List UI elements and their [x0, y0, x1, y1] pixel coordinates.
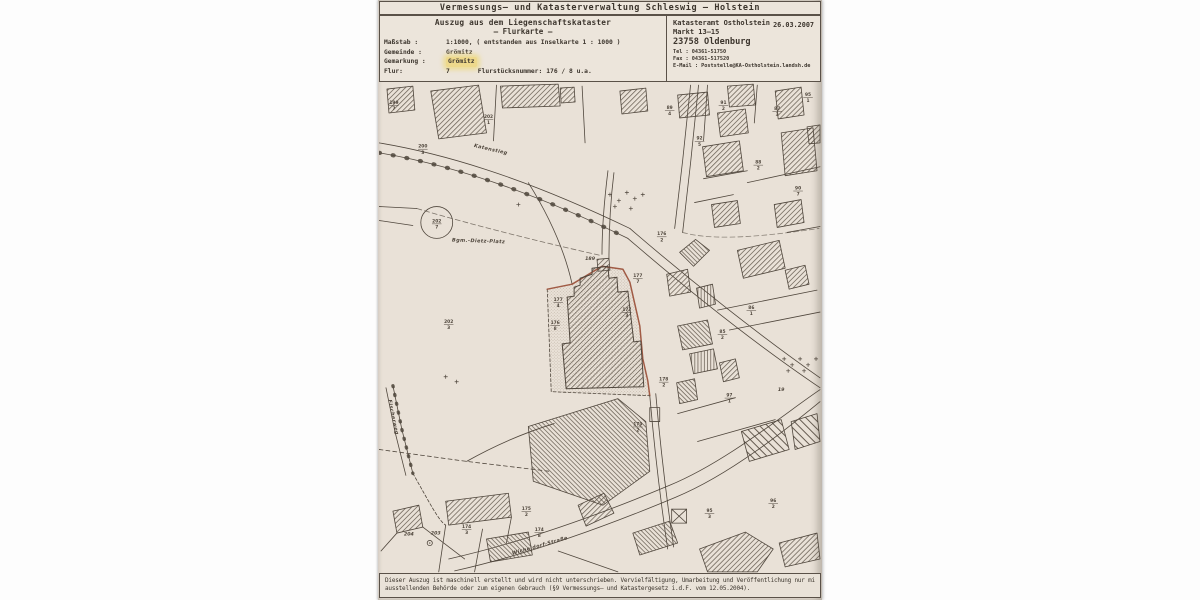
svg-text:177: 177: [622, 307, 631, 313]
cul-de-sac: [379, 207, 600, 256]
svg-text:7: 7: [392, 106, 395, 112]
svg-text:7: 7: [636, 279, 639, 285]
svg-text:95: 95: [805, 92, 811, 98]
svg-text:2: 2: [757, 166, 760, 172]
office-section: 26.03.2007 Katasteramt Ostholstein Markt…: [667, 16, 820, 81]
document-date: 26.03.2007: [773, 21, 814, 29]
parcel-number-label: 204: [404, 532, 415, 538]
flurstuecksnummer-value: 176 / 8 u.a.: [546, 67, 592, 77]
svg-text:8: 8: [538, 533, 541, 539]
parcel-number-label: 1743: [462, 524, 472, 536]
office-street: Markt 13–15: [673, 28, 816, 37]
parcel-number-label: 925: [695, 136, 705, 148]
svg-text:2: 2: [660, 237, 663, 243]
svg-text:2: 2: [525, 512, 528, 518]
svg-text:2: 2: [772, 504, 775, 510]
excerpt-section: Auszug aus dem Liegenschaftskataster – F…: [380, 16, 667, 81]
header-info-box: Auszug aus dem Liegenschaftskataster – F…: [379, 15, 821, 82]
grid-cross-mark: [814, 357, 818, 361]
parcel-number-label: 189: [585, 256, 596, 262]
document-title: Vermessungs– und Katasterverwaltung Schl…: [379, 1, 821, 15]
svg-text:179: 179: [633, 421, 642, 427]
svg-text:3: 3: [708, 514, 711, 520]
svg-text:5: 5: [698, 142, 701, 148]
cadastral-map: 1997202120032027202389491287395192588290…: [379, 82, 821, 573]
field-value: 7: [446, 67, 450, 77]
parcel-number-label: 203: [431, 531, 442, 537]
svg-text:19: 19: [778, 387, 785, 393]
svg-text:2: 2: [722, 106, 725, 112]
svg-text:1: 1: [728, 399, 731, 405]
parcel-number-label: 1782: [659, 377, 669, 389]
field-value-highlighted: Grömitz: [446, 57, 477, 67]
svg-text:203: 203: [431, 531, 442, 537]
parcel-number-label: 894: [665, 105, 675, 117]
grid-cross-mark: [786, 369, 790, 373]
svg-text:3: 3: [465, 530, 468, 536]
grid-cross-mark: [802, 369, 806, 373]
field-value: 1:1000, ( entstanden aus Inselkarte 1 : …: [446, 38, 620, 48]
svg-text:91: 91: [720, 100, 726, 106]
footer-note: Dieser Auszug ist maschinell erstellt un…: [379, 573, 821, 598]
svg-text:1: 1: [750, 311, 753, 317]
parcel-number-label: 1777: [633, 273, 643, 285]
svg-text:3: 3: [625, 313, 628, 319]
footer-line-2: ausstellenden Behörde oder zum eigenen G…: [385, 585, 815, 594]
street-name-label: Bgm.-Dietz-Platz: [452, 237, 506, 245]
fischerweg-road: [386, 386, 446, 525]
parcel-number-label: 951: [803, 92, 813, 104]
office-tel: Tel : 04361-51750: [673, 49, 816, 56]
parcel-number-label: 1752: [522, 506, 532, 518]
svg-text:90: 90: [795, 185, 801, 191]
excerpt-heading: Auszug aus dem Liegenschaftskataster: [384, 18, 662, 27]
svg-text:202: 202: [432, 218, 441, 224]
field-label: Gemeinde :: [384, 48, 446, 58]
svg-text:202: 202: [484, 114, 493, 120]
parcel-number-label: 912: [719, 100, 729, 112]
right-buildings: [667, 109, 820, 461]
grid-cross-mark: [790, 363, 794, 367]
parcel-number-label: 2023: [444, 319, 454, 331]
svg-text:189: 189: [585, 256, 596, 262]
flurstuecksnummer-label: Flurstücksnummer:: [478, 67, 542, 77]
crossed-building: [672, 509, 687, 523]
street-name-label: Katenstieg: [473, 143, 508, 157]
parcel-number-label: 953: [705, 508, 715, 520]
excerpt-subheading: – Flurkarte –: [384, 27, 662, 36]
svg-text:1: 1: [807, 98, 810, 104]
svg-text:202: 202: [444, 319, 453, 325]
footer-line-1: Dieser Auszug ist maschinell erstellt un…: [385, 577, 815, 586]
grid-cross-mark: [633, 197, 637, 201]
svg-text:2: 2: [721, 335, 724, 341]
field-label: Flur:: [384, 67, 446, 77]
office-fax: Fax : 04361-517520: [673, 56, 816, 63]
grid-cross-mark: [455, 380, 459, 384]
svg-text:Bgm.-Dietz-Platz: Bgm.-Dietz-Platz: [452, 237, 506, 245]
svg-text:86: 86: [748, 305, 754, 311]
field-row-massstab: Maßstab : 1:1000, ( entstanden aus Insel…: [384, 38, 662, 48]
svg-text:176: 176: [551, 320, 560, 326]
grid-cross-mark: [444, 375, 448, 379]
office-email: E-Mail : Poststelle@KA-Ostholstein.lands…: [673, 63, 816, 70]
svg-text:95: 95: [706, 508, 712, 514]
grid-cross-mark: [629, 207, 633, 211]
office-city: 23758 Oldenburg: [673, 37, 816, 48]
svg-text:96: 96: [770, 498, 776, 504]
svg-text:89: 89: [667, 105, 673, 111]
svg-text:92: 92: [697, 136, 703, 142]
svg-text:88: 88: [755, 160, 761, 166]
svg-text:4: 4: [668, 111, 671, 117]
parcel-number-label: 19: [778, 387, 785, 393]
field-label: Maßstab :: [384, 38, 446, 48]
svg-text:2: 2: [636, 428, 639, 434]
svg-text:1: 1: [487, 120, 490, 126]
grid-cross-mark: [641, 193, 645, 197]
parcel-number-label: 962: [768, 498, 778, 510]
scanned-document-stage: Vermessungs– und Katasterverwaltung Schl…: [0, 0, 1200, 600]
map-area: 1997202120032027202389491287395192588290…: [379, 82, 821, 573]
svg-text:177: 177: [633, 273, 642, 279]
field-row-gemarkung: Gemarkung : Grömitz: [384, 57, 662, 67]
grid-cross-mark: [806, 363, 810, 367]
svg-text:7: 7: [435, 224, 438, 230]
svg-text:199: 199: [389, 100, 398, 106]
svg-text:4: 4: [557, 303, 560, 309]
svg-text:178: 178: [659, 377, 668, 383]
svg-text:8: 8: [554, 326, 557, 332]
field-row-gemeinde: Gemeinde : Grömitz: [384, 48, 662, 58]
parcel-number-label: 852: [718, 329, 728, 341]
svg-text:7: 7: [797, 192, 800, 198]
svg-text:3: 3: [421, 150, 424, 156]
grid-cross-mark: [613, 205, 617, 209]
well-symbol: [427, 540, 432, 545]
grid-cross-mark: [625, 191, 629, 195]
parcel-number-label: 2027: [432, 218, 442, 230]
svg-text:Katenstieg: Katenstieg: [473, 143, 508, 157]
parcel-number-label: 1762: [657, 231, 667, 243]
svg-text:3: 3: [447, 325, 450, 331]
subject-building: [562, 258, 644, 388]
grid-cross-mark: [516, 203, 520, 207]
svg-text:87: 87: [774, 106, 780, 112]
field-label: Gemarkung :: [384, 57, 446, 67]
cadastral-extract-page: Vermessungs– und Katasterverwaltung Schl…: [378, 0, 822, 600]
parcel-number-label: 907: [793, 185, 803, 197]
grid-cross-mark: [798, 357, 802, 361]
svg-text:204: 204: [404, 532, 415, 538]
svg-text:3: 3: [776, 112, 779, 118]
parcel-number-label: 2003: [418, 144, 428, 156]
svg-text:200: 200: [418, 144, 427, 150]
svg-text:174: 174: [462, 524, 471, 530]
svg-text:174: 174: [535, 527, 544, 533]
parcel-number-label: 861: [747, 305, 757, 317]
svg-text:175: 175: [522, 506, 531, 512]
svg-text:85: 85: [719, 329, 725, 335]
svg-text:97: 97: [726, 392, 732, 398]
svg-text:177: 177: [554, 297, 563, 303]
parcel-number-label: 882: [754, 160, 764, 172]
svg-text:2: 2: [662, 383, 665, 389]
field-value: Grömitz: [446, 48, 473, 58]
svg-text:176: 176: [657, 231, 666, 237]
field-row-flur: Flur: 7 Flurstücksnummer: 176 / 8 u.a.: [384, 67, 662, 77]
grid-cross-mark: [617, 199, 621, 203]
grid-cross-mark: [782, 357, 786, 361]
katenstieg-road: [379, 85, 630, 284]
